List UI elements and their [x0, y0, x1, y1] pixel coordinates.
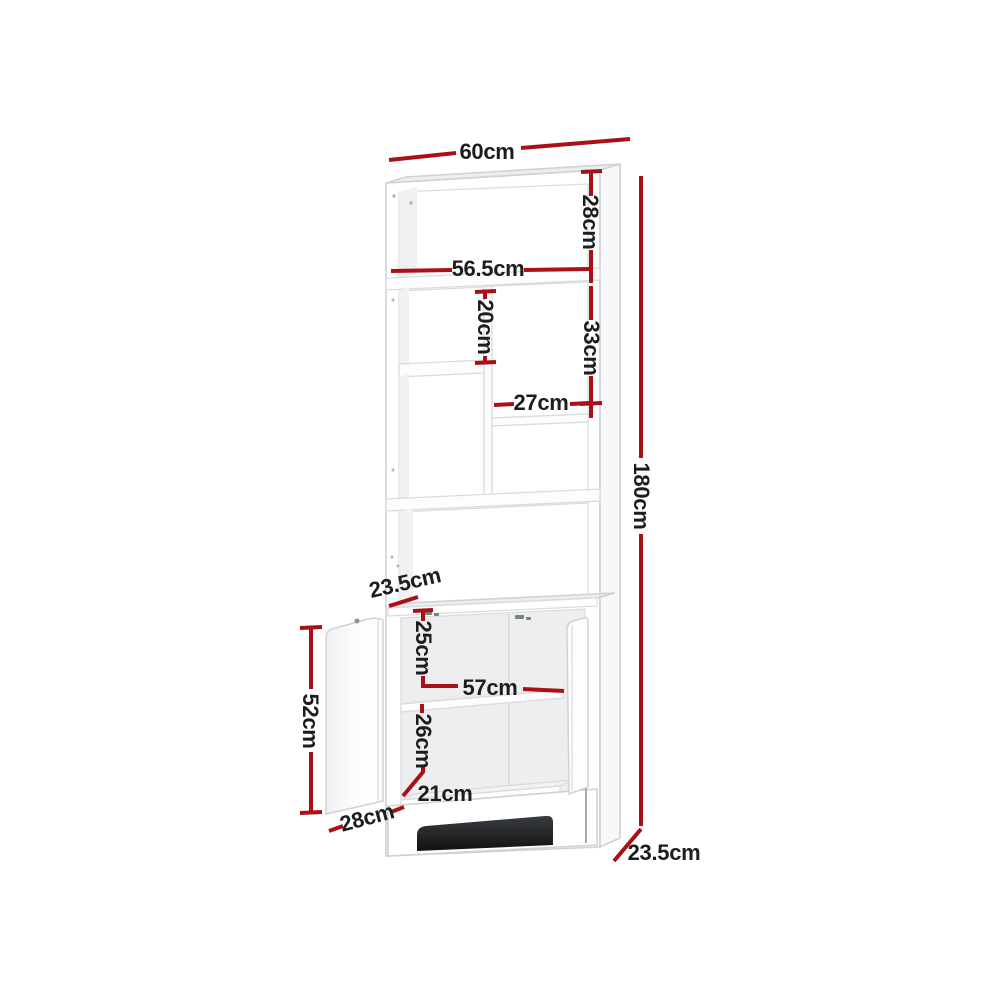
dim-cabinet-depth-label: 23.5cm: [628, 842, 701, 864]
dim-line-top-width-left: [389, 153, 456, 160]
dim-inner-shelf-width-label: 56.5cm: [452, 258, 525, 280]
dim-door-height-label: 52cm: [299, 693, 321, 748]
dimension-diagram-canvas: 60cm 28cm 56.5cm 20cm 33cm 27cm 180cm 23…: [0, 0, 1000, 1000]
cubby-left-inner-face: [399, 288, 409, 368]
dim-line: [523, 689, 564, 691]
dim-cap: [300, 812, 322, 813]
dim-top-width-label: 60cm: [459, 141, 514, 163]
top-cubby-left-inner-face: [399, 187, 417, 279]
middle-right-lower-cubby: [492, 422, 588, 494]
dim-right-cubby-width-label: 27cm: [513, 392, 568, 414]
middle-left-lower-cubby: [399, 373, 484, 499]
dim-cabinet-inner-width-label: 57cm: [462, 677, 517, 699]
open-section: [399, 503, 588, 608]
dim-cabinet-floor-depth-label: 21cm: [417, 783, 472, 805]
hinge: [434, 613, 439, 616]
dim-line: [494, 404, 514, 405]
shelf-pin-hole: [392, 194, 395, 197]
shelf-pin-hole: [392, 469, 395, 472]
dim-cap: [300, 627, 322, 628]
dim-top-cubby-height-label: 28cm: [579, 194, 601, 249]
dim-cabinet-lower-inner-height-label: 26cm: [412, 713, 434, 768]
dim-line-top-width-right: [521, 139, 630, 148]
shelf-pin-hole: [397, 565, 400, 568]
shelf-pin-hole: [392, 299, 395, 302]
dim-cap: [475, 291, 496, 292]
dim-cap: [475, 362, 496, 363]
hinge: [526, 617, 531, 620]
dim-line: [570, 403, 589, 404]
dim-cabinet-upper-inner-height-label: 25cm: [412, 620, 434, 675]
dim-line: [524, 269, 589, 270]
shelf-pin-hole: [409, 201, 412, 204]
left-door-open: [326, 618, 383, 814]
shelf-pin-hole: [391, 556, 394, 559]
dim-cap: [581, 171, 602, 172]
dim-left-cubby-height-label: 20cm: [474, 299, 496, 354]
right-door-open: [567, 618, 588, 794]
hinge: [515, 615, 524, 619]
middle-left-upper-cubby: [399, 287, 484, 368]
dim-cap: [413, 610, 433, 611]
shelf-unit-right-side-panel: [600, 164, 620, 847]
dim-line: [391, 270, 452, 271]
dim-overall-height-label: 180cm: [630, 462, 652, 529]
dim-right-cubby-height-label: 33cm: [580, 320, 602, 375]
cubby-left-inner-face: [399, 374, 409, 499]
left-door-screw: [355, 619, 360, 624]
